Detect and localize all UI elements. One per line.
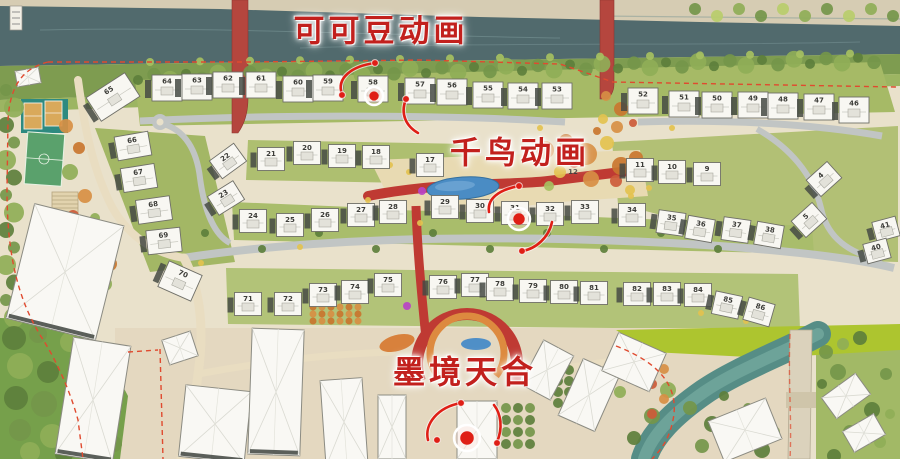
building-number: 28 — [388, 203, 398, 211]
target-marker — [454, 425, 480, 451]
map-label-mojing-tianhe: 墨境天合 — [393, 347, 537, 393]
building-number: 10 — [667, 163, 677, 171]
annotation-dot — [403, 96, 410, 103]
annotation-dot — [494, 440, 501, 447]
building-number: 77 — [470, 276, 480, 284]
large-building — [178, 385, 251, 459]
large-building — [15, 67, 41, 87]
building-number: 73 — [318, 286, 328, 294]
large-building — [378, 395, 406, 459]
building-number: 24 — [248, 212, 258, 220]
building-number: 58 — [368, 79, 378, 87]
building-number: 53 — [552, 86, 562, 94]
building-number: 17 — [425, 156, 435, 164]
map-label-qianniao-animation: 千鸟动画 — [450, 128, 590, 173]
building-number: 84 — [693, 286, 703, 294]
building-marker: 68 — [129, 196, 173, 225]
annotation-dot — [516, 183, 523, 190]
building-number: 21 — [266, 150, 276, 158]
building-number: 27 — [356, 206, 366, 214]
building-number: 66 — [127, 136, 138, 146]
building-number: 72 — [283, 295, 293, 303]
building-number: 30 — [475, 202, 485, 210]
building-number: 78 — [495, 280, 505, 288]
building-number: 32 — [545, 205, 555, 213]
building-number: 79 — [528, 282, 538, 290]
building-number: 80 — [559, 283, 569, 291]
building-number: 67 — [133, 168, 144, 177]
building-number: 64 — [162, 78, 172, 86]
building-number: 82 — [632, 285, 642, 293]
building-number: 26 — [320, 211, 330, 219]
building-number: 81 — [589, 284, 599, 292]
building-number: 54 — [518, 86, 528, 94]
building-number: 48 — [778, 96, 788, 104]
annotation-dot — [519, 248, 526, 255]
building-number: 33 — [580, 203, 590, 211]
building-number: 35 — [666, 213, 677, 222]
building-number: 29 — [440, 198, 450, 206]
building-number: 56 — [447, 82, 457, 90]
building-number: 55 — [483, 85, 493, 93]
building-number: 50 — [712, 95, 722, 103]
building-number: 52 — [638, 91, 648, 99]
annotation-dot — [372, 60, 379, 67]
masterplan-map: 6564636261605958575655545352515049484746… — [0, 0, 900, 459]
annotation-dot — [434, 437, 441, 444]
building-number: 49 — [748, 95, 758, 103]
building-number: 71 — [243, 295, 253, 303]
building-number: 38 — [764, 225, 775, 235]
building-number: 46 — [849, 100, 859, 108]
building-number: 9 — [705, 165, 710, 173]
building-number: 63 — [192, 77, 202, 85]
building-number: 75 — [383, 276, 393, 284]
building-number: 19 — [337, 147, 347, 155]
large-building — [320, 378, 368, 459]
building-number: 59 — [323, 78, 333, 86]
building-number: 36 — [695, 219, 706, 229]
large-building — [248, 328, 304, 456]
building-number: 37 — [731, 220, 742, 229]
map-label-kekedou-animation: 可可豆动画 — [294, 6, 469, 51]
sports-courts — [21, 99, 68, 186]
building-number: 20 — [302, 144, 312, 152]
building-number: 11 — [635, 161, 645, 169]
building-number: 69 — [158, 231, 169, 240]
building-number: 25 — [285, 216, 295, 224]
building-number: 60 — [293, 79, 303, 87]
building-number: 62 — [223, 75, 233, 83]
building-number: 68 — [148, 200, 159, 209]
target-marker — [365, 87, 383, 105]
building-number: 57 — [415, 81, 425, 89]
annotation-dot — [339, 92, 346, 99]
building-number: 83 — [662, 285, 672, 293]
target-marker — [508, 208, 530, 230]
building-number: 74 — [350, 283, 360, 291]
building-number: 47 — [814, 97, 824, 105]
building-number: 51 — [679, 94, 689, 102]
building-number: 61 — [256, 75, 266, 83]
building-number: 34 — [627, 206, 637, 214]
annotation-dot — [458, 400, 465, 407]
building-number: 76 — [438, 278, 448, 286]
building-number: 18 — [371, 148, 381, 156]
